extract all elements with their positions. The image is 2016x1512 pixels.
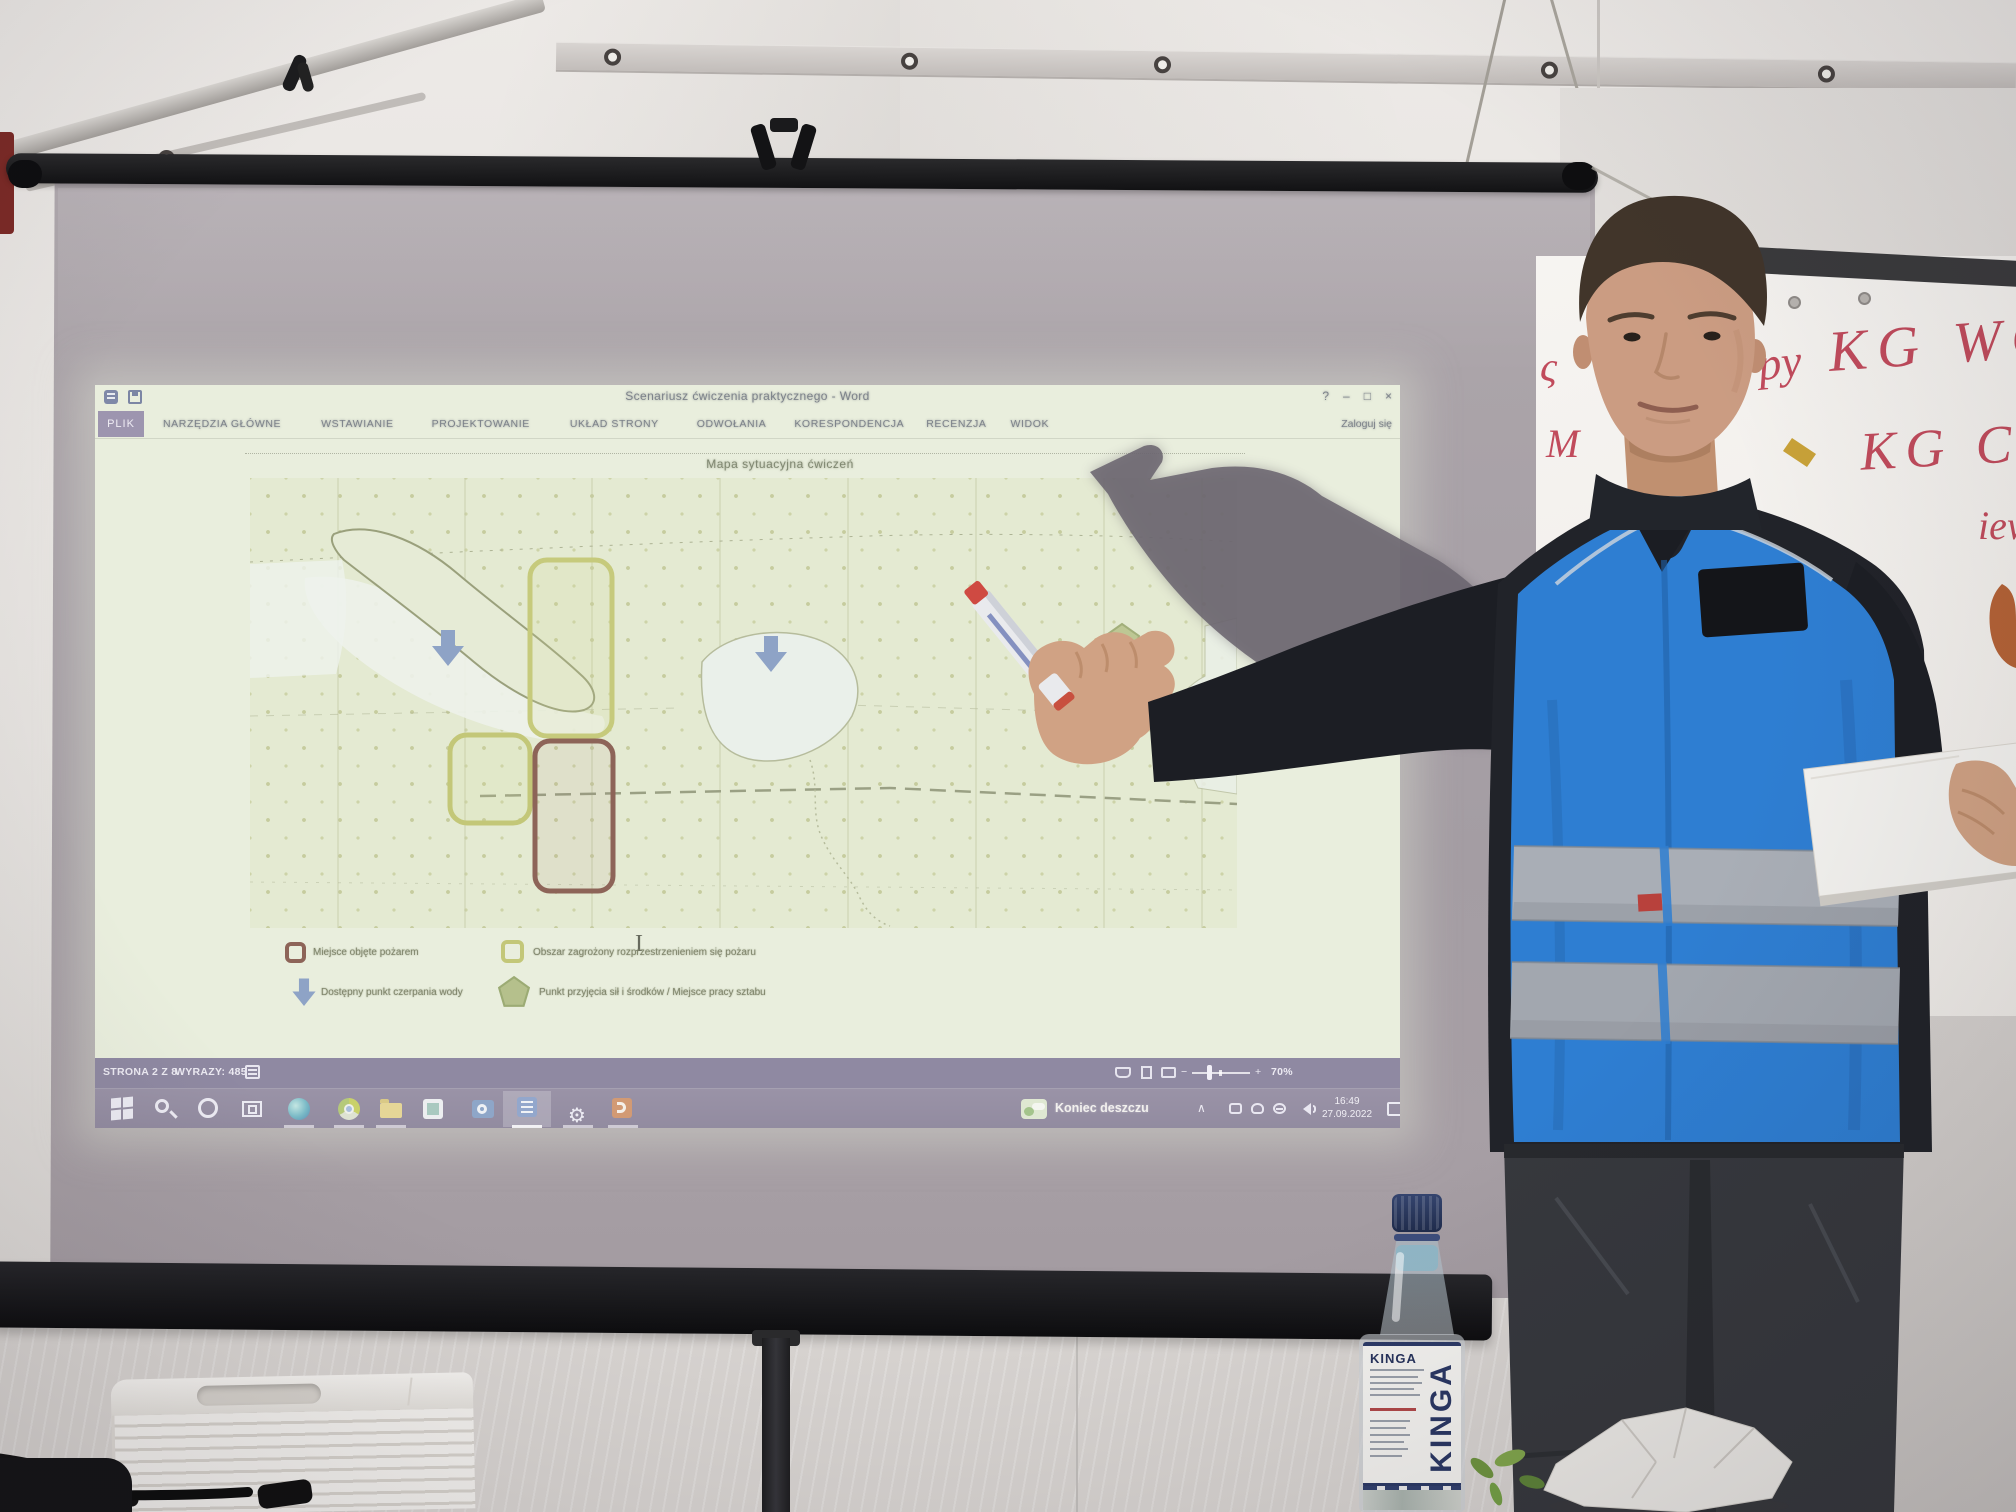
label-microtext (1370, 1420, 1410, 1422)
bottle-label: KINGA KINGA (1363, 1342, 1461, 1488)
label-microtext (1370, 1455, 1402, 1457)
floor-shadow (0, 1458, 132, 1512)
label-band (1363, 1342, 1461, 1346)
label-microtext (1370, 1376, 1418, 1378)
presenter-body (1148, 196, 2016, 1512)
shoulder-chevron (1783, 438, 1816, 467)
chest-badge (1698, 562, 1808, 637)
bottle-brand-vertical: KINGA (1425, 1352, 1459, 1482)
presenter-head (1573, 196, 1767, 530)
label-microtext (1370, 1388, 1414, 1390)
label-accent (1370, 1408, 1416, 1411)
label-photo-band (1363, 1490, 1461, 1510)
label-microtext (1370, 1394, 1420, 1396)
photo-scene: ς M py KG WOO KG COO iew Scenariusz ćwic… (0, 0, 2016, 1512)
label-microtext (1370, 1427, 1406, 1429)
label-microtext (1370, 1448, 1408, 1450)
vest-red-tag (1638, 893, 1663, 911)
bottle-cap-ridges (1394, 1196, 1440, 1230)
label-microtext (1370, 1369, 1424, 1371)
bottle-brand: KINGA (1370, 1351, 1417, 1366)
bottle-ring (1394, 1234, 1440, 1241)
device-seam (407, 1378, 412, 1406)
label-microtext (1370, 1434, 1410, 1436)
presenter-figure (0, 0, 2016, 1512)
label-microtext (1370, 1441, 1404, 1443)
sleeve-arm-patch (1990, 584, 2016, 668)
water-bottle: KINGA KINGA (1352, 1190, 1470, 1512)
crumpled-paper (1536, 1398, 1802, 1512)
label-microtext (1370, 1382, 1422, 1384)
